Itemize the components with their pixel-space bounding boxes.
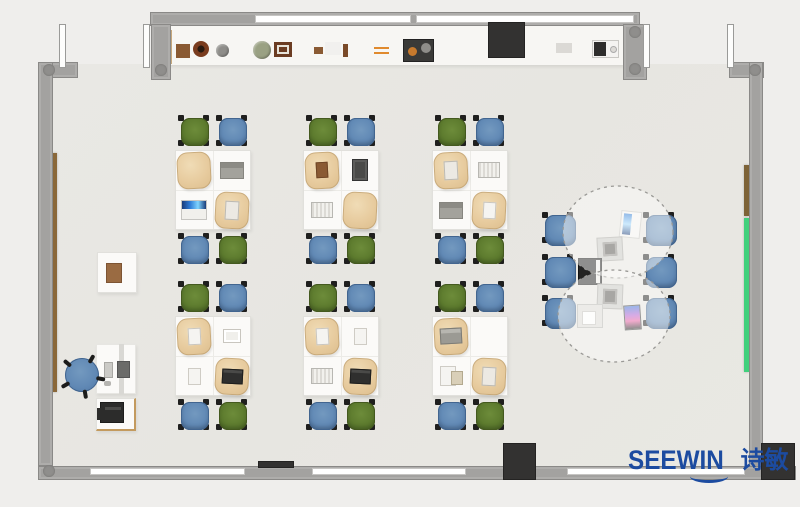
teacher-mouse xyxy=(104,381,111,386)
door-leaf-left-a xyxy=(59,24,66,68)
desk-item-bag-laptop xyxy=(221,368,243,384)
door-leaf-right-b xyxy=(727,24,734,68)
teacher-monitor xyxy=(117,361,130,378)
desk-item-bag-book xyxy=(225,200,240,220)
brand-logo: SEEWIN 诗敏 xyxy=(628,447,789,474)
desk-item-bag-laptopgray xyxy=(440,327,463,344)
tray-item xyxy=(408,47,417,56)
chair-green xyxy=(181,118,209,146)
shelf-item-box-icon xyxy=(325,42,341,55)
wall-vent xyxy=(258,461,294,468)
shelf-item-circle-icon xyxy=(253,41,271,59)
wall-joint xyxy=(629,63,641,75)
desk-item-book-gray xyxy=(478,162,500,178)
desk-item-bag xyxy=(176,151,212,190)
desk-cluster xyxy=(301,118,381,264)
desk-item-book-gray xyxy=(311,368,333,384)
wall-joint xyxy=(43,64,55,76)
shelf-ring-icon xyxy=(193,41,209,57)
chair-blue xyxy=(438,402,466,430)
desk-item-bag-book xyxy=(482,366,497,386)
teacher-chair xyxy=(65,358,99,392)
desk-cluster xyxy=(430,118,510,264)
desk-cluster xyxy=(430,284,510,430)
device-dot xyxy=(610,46,617,53)
shelf-item-lines-icon xyxy=(374,47,389,54)
desk-item-laptop-gray xyxy=(439,202,463,219)
tray-item xyxy=(421,43,431,53)
desk-item-paper xyxy=(354,328,367,345)
left-wall xyxy=(38,62,53,466)
desk-item-bag xyxy=(342,191,378,230)
desk-item-paper-book xyxy=(451,371,463,385)
desk-cluster xyxy=(173,284,253,430)
chair-blue xyxy=(219,118,247,146)
desk-item-bag-book xyxy=(444,160,459,180)
shelf-item-sq-icon xyxy=(314,47,323,54)
chair-green xyxy=(347,236,375,264)
desk-item-bag-paper xyxy=(482,201,496,219)
brand-logo-swoosh-icon xyxy=(690,470,728,483)
desk-item-laptop-white xyxy=(182,201,206,209)
chair-blue xyxy=(347,118,375,146)
wall-joint xyxy=(155,64,167,76)
wall-joint xyxy=(629,26,641,38)
chair-blue xyxy=(476,284,504,312)
teacher-keyboard xyxy=(104,362,113,378)
printer-slot xyxy=(105,407,121,410)
desk-item-book-gray xyxy=(311,202,333,218)
chair-blue xyxy=(438,236,466,264)
chair-blue xyxy=(309,236,337,264)
chair-green xyxy=(309,118,337,146)
shelf-line xyxy=(374,52,389,54)
chair-blue xyxy=(476,118,504,146)
desk-item-bag-paper xyxy=(187,327,201,345)
desk-cluster xyxy=(301,284,381,430)
chair-green xyxy=(438,118,466,146)
teacher-desk xyxy=(96,344,136,394)
printer-top xyxy=(97,408,105,420)
shelf-item-sq-icon xyxy=(343,44,348,57)
wall-joint xyxy=(749,64,761,76)
door-leaf-left-b xyxy=(143,24,150,68)
shelf-item-tray-icon xyxy=(403,39,434,62)
bottom-window-1 xyxy=(90,468,245,475)
chair-green xyxy=(219,236,247,264)
wall-joint xyxy=(43,465,55,477)
chair-green xyxy=(219,402,247,430)
side-desk-item xyxy=(106,263,122,283)
shelf-item-frame-icon xyxy=(274,42,292,57)
chair-leg xyxy=(96,376,106,382)
device-dark xyxy=(594,42,606,56)
desk-cluster xyxy=(173,118,253,264)
desk-item-laptop-gray xyxy=(220,162,244,179)
chair-blue xyxy=(219,284,247,312)
door-leaf-right-a xyxy=(643,24,650,68)
chair-green xyxy=(181,284,209,312)
chair-blue xyxy=(181,236,209,264)
shelf-item-sq-icon xyxy=(176,44,190,58)
desk-item-bag-box xyxy=(316,162,329,179)
desk-item-bag-paper xyxy=(315,327,329,345)
top-window-2 xyxy=(416,15,634,23)
desk-item-book-white xyxy=(223,329,241,343)
desk-item-bag-laptop xyxy=(349,368,371,384)
chair-blue xyxy=(181,402,209,430)
chair-leg xyxy=(83,389,89,399)
chair-blue xyxy=(347,284,375,312)
printer xyxy=(100,402,124,423)
chair-green xyxy=(309,284,337,312)
brand-logo-chinese: 诗敏 xyxy=(741,447,789,473)
pillar-bottom-mid xyxy=(503,443,536,480)
chair-green xyxy=(476,402,504,430)
desk-item-tablet-dark xyxy=(352,159,368,181)
desk-item-paper xyxy=(188,368,201,385)
chair-blue xyxy=(309,402,337,430)
pillar-top xyxy=(488,22,525,58)
shelf-line xyxy=(374,47,389,49)
chair-green xyxy=(438,284,466,312)
shelf-item-box-icon xyxy=(556,43,572,53)
chair-green xyxy=(347,402,375,430)
shelf-item-device-icon xyxy=(592,40,619,58)
floor-plan-canvas: SEEWIN 诗敏 xyxy=(0,0,800,507)
collab-table-outline xyxy=(540,178,710,368)
shelf-item-circle-icon xyxy=(216,44,229,57)
top-window-1 xyxy=(255,15,411,23)
right-wall xyxy=(749,62,763,480)
chair-green xyxy=(476,236,504,264)
bottom-window-2 xyxy=(312,468,466,475)
